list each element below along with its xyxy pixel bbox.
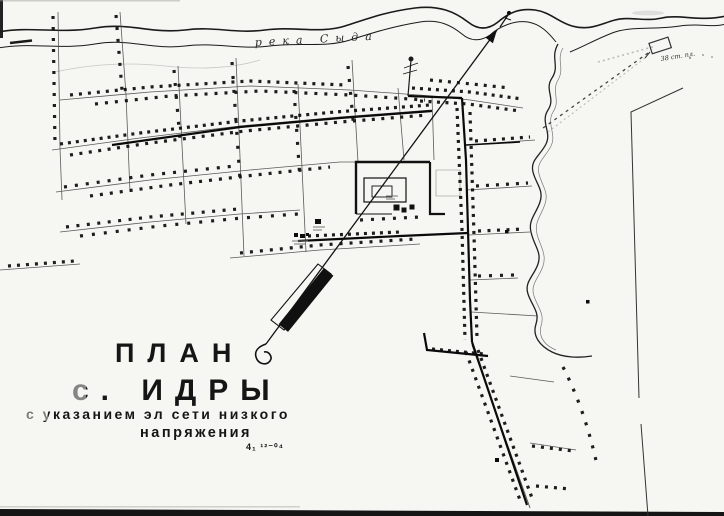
north-arrow-shaft <box>266 30 497 344</box>
boundary-line <box>631 88 683 516</box>
map-scan: река Сыда <box>0 0 724 516</box>
stream-echo <box>533 48 563 350</box>
stream-main <box>527 44 592 357</box>
north-arrow-tail-icon <box>256 344 271 364</box>
river-label: река Сыда <box>254 30 379 49</box>
pole-symbol <box>403 57 418 96</box>
river-upper-bank <box>0 7 724 32</box>
flag-icon <box>649 37 671 54</box>
river-name-text: река Сыда <box>254 30 379 49</box>
title-line3: с указанием эл сети низкого <box>26 406 290 422</box>
flag-feed-dashes <box>543 53 648 128</box>
title-note: 4₁ ¹²⁻⁰⁴ <box>246 442 284 452</box>
flag-feed-scribble <box>548 58 645 132</box>
stream <box>527 44 592 357</box>
title-line1: ПЛАН <box>115 338 244 368</box>
street-network <box>0 12 576 508</box>
central-compound <box>356 162 445 214</box>
title-block: ПЛАН с. ИДРЫ с указанием эл сети низкого… <box>24 338 290 452</box>
title-line2: с. ИДРЫ <box>72 374 282 407</box>
riverbank-track <box>55 60 260 72</box>
survey-flag: 38 ст. пл. <box>543 37 696 132</box>
village-plan-svg: река Сыда <box>0 0 724 516</box>
scan-artifacts <box>0 0 724 516</box>
large-dark-building <box>271 264 333 332</box>
title-line4: напряжения <box>140 425 252 441</box>
field-annotation-text: 38 ст. пл. <box>660 50 695 63</box>
